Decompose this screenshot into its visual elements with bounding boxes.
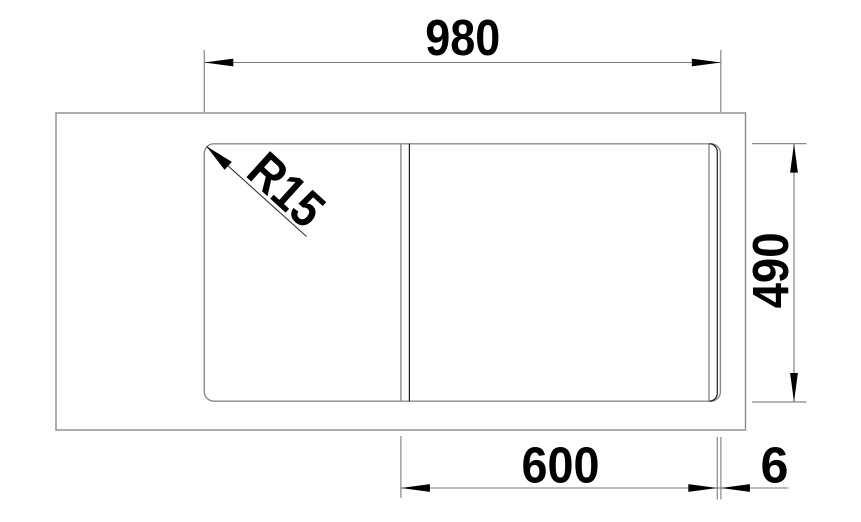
svg-text:6: 6	[761, 437, 789, 494]
svg-text:600: 600	[522, 437, 600, 494]
svg-text:980: 980	[425, 9, 500, 66]
svg-text:490: 490	[742, 232, 799, 308]
